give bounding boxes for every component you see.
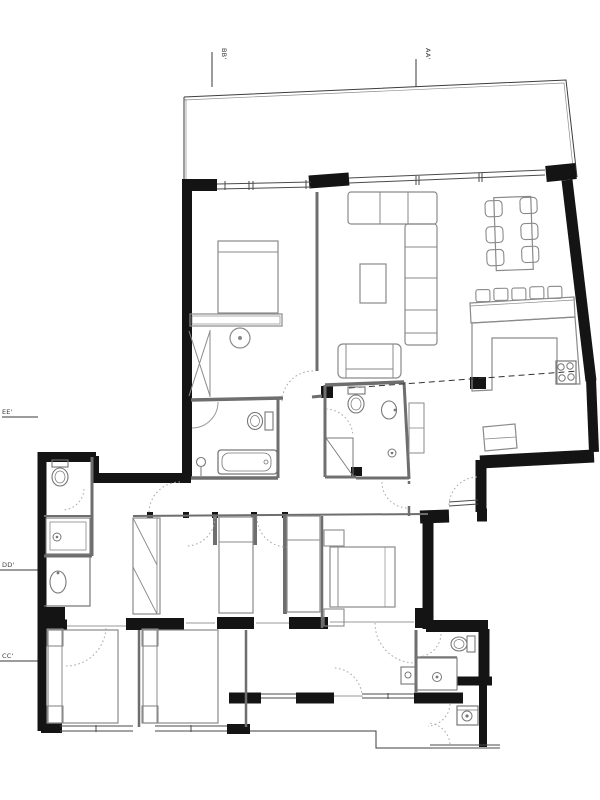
faucet-dot bbox=[394, 409, 397, 412]
dining-table bbox=[494, 196, 534, 270]
single-bed bbox=[219, 517, 253, 613]
desk-inner bbox=[192, 316, 280, 324]
toilet-bowl bbox=[248, 413, 263, 430]
bar-stool bbox=[512, 288, 526, 300]
door-arc-bathroom-2 bbox=[326, 409, 353, 436]
door-arc-bedroom-4 bbox=[375, 623, 415, 663]
kitchen-counter-u bbox=[472, 317, 580, 391]
terrace-outline bbox=[184, 80, 577, 180]
bar-stool bbox=[476, 290, 490, 302]
living-room bbox=[338, 192, 437, 378]
section-label-aa: AA' bbox=[424, 48, 432, 59]
coffee-table bbox=[360, 264, 386, 303]
shower bbox=[46, 518, 90, 554]
loveseat bbox=[338, 344, 401, 378]
window-hall-2 bbox=[362, 693, 414, 699]
door-arc-entry-hall bbox=[382, 482, 408, 508]
door-arc-bedroom-b bbox=[257, 517, 287, 547]
bedroom-4 bbox=[324, 530, 395, 626]
bathtub-drain bbox=[264, 460, 268, 464]
bedroom-bottom-middle bbox=[142, 629, 218, 723]
single-bed bbox=[287, 516, 320, 612]
bedroom-strip bbox=[133, 516, 320, 614]
kitchen bbox=[470, 286, 580, 451]
dining-chair bbox=[521, 246, 539, 263]
wardrobe-symbol bbox=[189, 330, 210, 397]
toilet-tank bbox=[467, 636, 475, 652]
bedroom-bottom-left bbox=[47, 629, 118, 723]
section-label-bb: BB' bbox=[220, 48, 228, 59]
bar-stool bbox=[548, 286, 562, 298]
toilet-tank bbox=[265, 412, 273, 430]
door-arc-bedroom-a bbox=[186, 517, 215, 546]
master-bedroom bbox=[189, 241, 282, 397]
door-arc-corridor bbox=[149, 482, 180, 513]
dashed-beam-line bbox=[349, 371, 578, 388]
small-bathroom bbox=[46, 460, 90, 593]
vanity-stool-center bbox=[238, 336, 242, 340]
wardrobe bbox=[133, 518, 160, 614]
sectional-sofa-top bbox=[348, 192, 437, 224]
sectional-sofa-side bbox=[405, 224, 437, 345]
double-bed bbox=[143, 630, 218, 723]
bar-stool bbox=[530, 287, 544, 299]
section-label-ee: EE' bbox=[2, 408, 13, 416]
window-bedroom-bottom-2 bbox=[155, 725, 227, 732]
nightstand bbox=[324, 530, 344, 546]
door-arc-small-bathroom bbox=[63, 489, 84, 510]
double-bed bbox=[48, 630, 118, 723]
window-hall-1 bbox=[261, 694, 296, 698]
windows bbox=[60, 170, 545, 732]
dining-chair bbox=[520, 197, 538, 214]
window-bedroom-bottom-1 bbox=[60, 725, 133, 732]
floor-plan-canvas: BB' AA' EE' DD' CC' bbox=[0, 0, 600, 800]
shower-head-symbol bbox=[197, 458, 206, 467]
door-arc-bathroom-3 bbox=[417, 634, 441, 657]
window-master bbox=[217, 180, 311, 190]
entry-door-threshold bbox=[449, 500, 478, 506]
section-label-cc: CC' bbox=[2, 652, 13, 660]
door-arc-master-bedroom bbox=[282, 371, 313, 402]
wall-block bbox=[415, 608, 430, 628]
door-arc-patio bbox=[334, 668, 362, 697]
dining-area bbox=[485, 196, 540, 271]
door-arc-laundry-1 bbox=[428, 704, 450, 726]
washbasin bbox=[401, 667, 416, 684]
section-label-dd: DD' bbox=[2, 561, 14, 569]
door-arc-laundry-2 bbox=[428, 723, 450, 744]
shower bbox=[417, 658, 457, 690]
toilet-bowl bbox=[451, 637, 467, 651]
floor-plan-drawing: BB' AA' EE' DD' CC' bbox=[0, 0, 600, 800]
bar-stool bbox=[494, 288, 508, 300]
dining-chair bbox=[521, 223, 539, 240]
faucet-dot bbox=[57, 572, 60, 575]
door-arc-main-bathroom bbox=[192, 402, 218, 428]
window-living bbox=[349, 170, 545, 185]
laundry bbox=[430, 706, 500, 748]
